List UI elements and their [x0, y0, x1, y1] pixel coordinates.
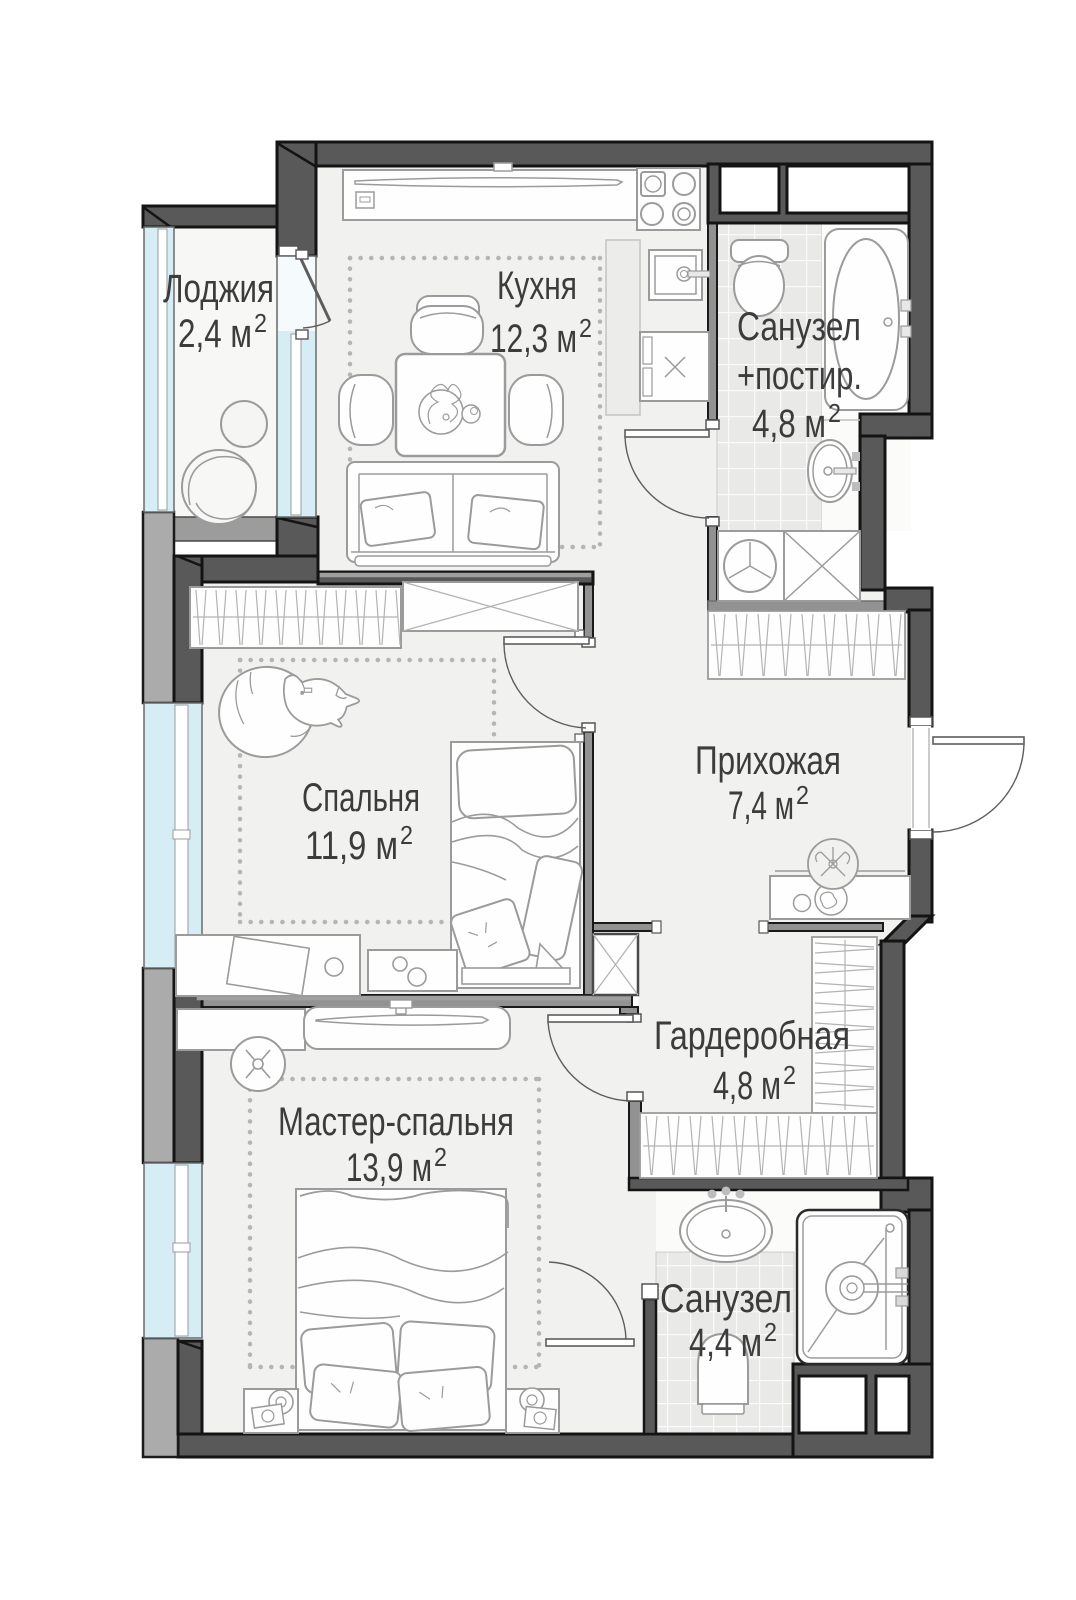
svg-text:Мастер-спальня: Мастер-спальня [278, 1100, 514, 1144]
svg-text:2: 2 [579, 313, 592, 343]
svg-text:2: 2 [796, 780, 809, 810]
svg-text:4,4 м: 4,4 м [689, 1321, 762, 1365]
svg-text:2: 2 [783, 1060, 796, 1090]
svg-text:Санузел: Санузел [660, 1277, 792, 1321]
svg-text:Прихожая: Прихожая [695, 739, 841, 783]
svg-text:2: 2 [828, 398, 841, 428]
svg-text:Лоджия: Лоджия [163, 267, 274, 311]
svg-text:Спальня: Спальня [302, 776, 420, 820]
svg-text:4,8 м: 4,8 м [752, 402, 826, 446]
svg-text:2: 2 [254, 308, 267, 338]
svg-text:2: 2 [764, 1317, 777, 1347]
svg-text:2,4 м: 2,4 м [178, 312, 252, 356]
svg-text:Кухня: Кухня [497, 264, 577, 308]
svg-text:4,8 м: 4,8 м [713, 1064, 781, 1108]
svg-text:Гардеробная: Гардеробная [654, 1014, 850, 1058]
svg-text:+постир.: +постир. [737, 354, 862, 398]
svg-text:13,9 м: 13,9 м [346, 1146, 432, 1190]
svg-text:2: 2 [434, 1142, 447, 1172]
svg-text:Санузел: Санузел [737, 305, 861, 349]
svg-text:2: 2 [400, 820, 413, 850]
svg-text:12,3 м: 12,3 м [490, 317, 577, 361]
svg-text:11,9 м: 11,9 м [305, 824, 398, 868]
svg-text:7,4 м: 7,4 м [728, 784, 794, 828]
